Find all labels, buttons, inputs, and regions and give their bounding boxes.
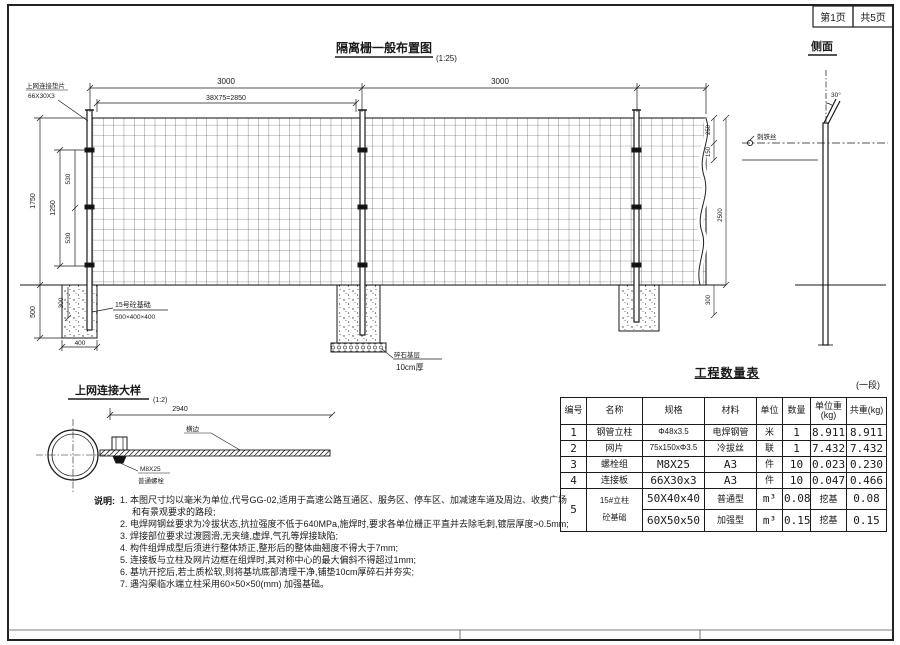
dim-depth: 500 [30,306,37,318]
connector-label: 上网连接垫片 [26,81,65,90]
row5-name: 15#立柱 砼基础 [587,489,643,532]
col-total-weight: 共重(kg) [847,398,887,425]
col-spec: 规格 [643,398,705,425]
main-elevation: 隔离栅一般布置图 (1:25) [20,40,729,372]
main-view-scale: (1:25) [436,54,457,63]
fence-mesh [90,118,706,285]
note-item: 2. 电焊网钢丝要求为冷拔状态,抗拉强度不低于640MPa,施焊时,要求各单位栅… [120,518,572,530]
col-qty: 数量 [783,398,811,425]
foundation-spec: 500×400×400 [115,314,156,321]
angle-label: 30° [831,91,841,99]
dim-span2: 3000 [491,77,509,86]
note-item: 4. 构件组焊成型后须进行整体矫正,整形后的整体曲翘度不得大于7mm; [120,542,572,554]
table-row: 4 连接板 66X30x3 A3 件 10 0.047 0.466 [561,473,887,489]
quantity-table: 编号 名称 规格 材料 单位 数量 单位重 (kg) 共重(kg) 1 钢管立柱… [560,397,887,532]
detail-title: 上网连接大样 [75,383,141,397]
pages-total-text: 共5页 [860,12,886,24]
detail-scale: (1:2) [153,397,167,404]
quantity-table-title: 工程数量表 [560,364,894,381]
bolt-type-label: 普通螺栓 [138,476,165,485]
dim-seg-bottom: 530 [65,232,72,243]
quantity-table-unit-note: (一段) [856,378,880,391]
page-number-block: 第1页 共5页 [813,6,893,27]
side-view: 侧面 30° 刺铁丝 [742,39,888,345]
dim-right-b: 150 [706,146,712,157]
footing-middle [337,285,380,343]
dim-right-post: 2500 [718,208,724,222]
note-item: 5. 连接板与立柱及网片边框在组焊时,其对称中心的最大偏斜不得超过1mm; [120,554,572,566]
notes-label: 说明: [94,495,115,507]
side-post [823,123,828,345]
col-unit: 单位 [757,398,783,425]
note-item: 6. 基坑开挖后,若土质松软,则将基坑底部清理干净,铺垫10cm厚碎石并夯实; [120,566,572,578]
col-unit-weight: 单位重 (kg) [811,398,847,425]
dim-span1: 3000 [217,77,235,86]
page-no-text: 第1页 [820,11,846,24]
mesh-edge-plate [100,450,330,456]
dim-footing-width: 400 [75,340,86,347]
table-row: 3 螺栓组 M8X25 A3 件 10 0.023 0.230 [561,457,887,473]
col-no: 编号 [561,398,587,425]
gravel-base [331,343,386,352]
dim-embed: 300 [58,297,65,308]
connector-spec: 66X30X3 [28,93,55,100]
dim-mesh-pitch: 38X75=2850 [206,95,246,102]
dim-right-a: 250 [706,124,712,135]
main-view-title: 隔离栅一般布置图 [336,40,432,55]
top-dimensions: 3000 3000 38X75=2850 [87,77,709,114]
quantity-table-block: 工程数量表 (一段) 编号 名称 规格 材料 单位 数量 单位重 (kg) 共重… [560,364,894,532]
barbed-wire-label: 刺铁丝 [757,132,777,141]
col-material: 材料 [705,398,757,425]
table-row: 5 15#立柱 砼基础 50X40x40 普通型 m³ 0.08 挖基 0.08 [561,489,887,510]
bolt-label: M8X25 [140,466,161,473]
table-row: 2 网片 75x150xΦ3.5 冷拔丝 联 1 7.432 7.432 [561,441,887,457]
connection-detail: 上网连接大样 (1:2) 2940 横边 M8X25 普通螺栓 [36,383,335,492]
edge-label: 横边 [186,424,200,433]
note-item: 1. 本图尺寸均以毫米为单位,代号GG-02,适用于高速公路互通区、服务区、停车… [120,494,572,518]
foundation-label: 15号砼基础 [115,300,151,309]
table-row: 1 钢管立柱 Φ48x3.5 电焊钢管 米 1 8.911 8.911 [561,425,887,441]
note-item: 7. 遇沟渠临水端立柱采用60×50×50(mm) 加强基础。 [120,578,572,590]
dim-inner: 1250 [50,200,57,216]
col-name: 名称 [587,398,643,425]
detail-dim: 2940 [172,406,188,413]
dim-seg-top: 530 [65,173,72,184]
dim-right-c: 300 [706,294,712,305]
dim-height: 1750 [30,193,37,209]
bolt [108,437,131,463]
side-view-title: 侧面 [811,39,833,53]
notes-block: 说明: 1. 本图尺寸均以毫米为单位,代号GG-02,适用于高速公路互通区、服务… [94,494,572,590]
table-header-row: 编号 名称 规格 材料 单位 数量 单位重 (kg) 共重(kg) [561,398,887,425]
gravel-label: 碎石基层 [394,350,421,359]
gravel-spec: 10cm厚 [396,363,424,372]
note-item: 3. 焊接部位要求过渡圆滑,无夹缝,虚焊,气孔等焊接缺陷; [120,530,572,542]
right-dimensions: 250 150 2500 300 [706,115,729,318]
drawing-sheet: 第1页 共5页 隔离栅一般布置图 (1:25) [0,0,900,645]
